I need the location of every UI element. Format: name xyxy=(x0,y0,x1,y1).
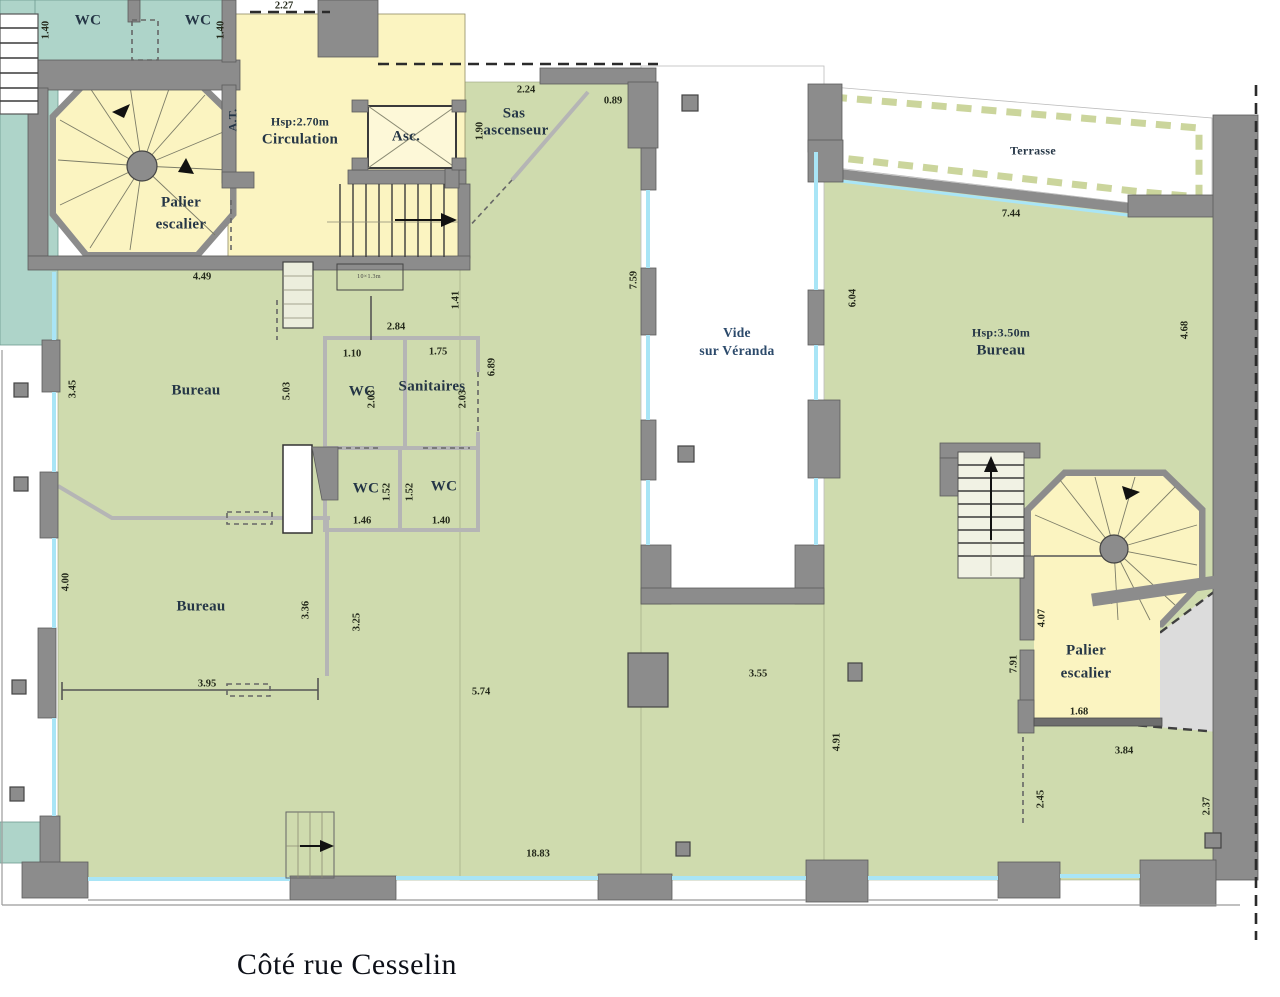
dim-wc-right: 1.40 xyxy=(216,21,227,39)
dim-sas-right: 0.89 xyxy=(604,96,622,107)
dim-bureau-r-right: 4.68 xyxy=(1180,321,1191,339)
dim-open-mid: 3.55 xyxy=(749,669,767,680)
dim-wc-low-r-w: 1.40 xyxy=(432,516,450,527)
wall-mid-band xyxy=(28,256,470,270)
room-label-elevator: Asc. xyxy=(392,129,420,146)
room-label-palier-right-2: escalier xyxy=(1061,666,1112,683)
wall-right-main xyxy=(1213,115,1258,880)
void-wall-r3 xyxy=(808,400,840,478)
pier-b6 xyxy=(1140,860,1216,906)
wall-left-b1 xyxy=(42,340,60,392)
dim-wc-low-r-h: 1.52 xyxy=(405,483,416,501)
dim-bureau2-right: 3.36 xyxy=(301,601,312,619)
dim-sas-h: 1.90 xyxy=(475,122,486,140)
dim-below-palier: 3.84 xyxy=(1115,746,1133,757)
spiral-right-newel xyxy=(1100,535,1128,563)
wall-left-b4 xyxy=(40,816,60,868)
dim-right-edge: 2.37 xyxy=(1202,797,1213,815)
room-label-terrasse: Terrasse xyxy=(1010,144,1056,159)
dim-bureau2-left: 4.00 xyxy=(61,573,72,591)
room-label-wc-low-right: WC xyxy=(431,479,457,496)
room-label-bureau-upper: Bureau xyxy=(171,383,220,400)
wall-rstair-left xyxy=(940,458,958,496)
void-wall-l3 xyxy=(641,268,656,335)
wall-at-2 xyxy=(222,172,254,188)
spiral-left-newel xyxy=(127,151,157,181)
room-label-circulation: Circulation xyxy=(262,132,338,149)
wall-slant-end xyxy=(1128,195,1216,217)
wall-asc-stub xyxy=(445,168,459,188)
pier-b1 xyxy=(22,862,88,898)
pier-b4 xyxy=(806,860,868,902)
dim-below-palier-v: 2.45 xyxy=(1036,790,1047,808)
dim-san-corner: 1.41 xyxy=(451,291,462,309)
dim-wc-low-l-w: 1.46 xyxy=(353,516,371,527)
dim-palier-r-left: 4.07 xyxy=(1037,609,1048,627)
green-under-void xyxy=(641,604,824,880)
room-label-wc-low-left: WC xyxy=(353,481,379,498)
dim-vide-left: 7.59 xyxy=(629,271,640,289)
room-label-circulation-height: Hsp:2.70m xyxy=(271,115,329,130)
wall-terr-left xyxy=(808,140,843,182)
room-label-vide-1: Vide xyxy=(723,325,751,341)
dim-san-h: 2.03 xyxy=(458,390,469,408)
room-label-vide-2: sur Véranda xyxy=(699,343,774,359)
dim-palier-r-outer: 7.91 xyxy=(1009,655,1020,673)
floor-plan-canvas: WC WC 1.40 1.40 2.27 A.T. Hsp:2.70m Circ… xyxy=(0,0,1280,997)
dim-wc-mid-h: 2.03 xyxy=(367,390,378,408)
wall-palier-step xyxy=(1018,700,1034,733)
wall-top-band xyxy=(8,60,240,90)
pier-b3 xyxy=(598,874,672,900)
room-label-at: A.T. xyxy=(226,109,241,132)
wall-wc-divider xyxy=(128,0,140,22)
dim-san-w: 1.75 xyxy=(429,347,447,358)
void-wall-l2 xyxy=(641,148,656,190)
wall-left-b3 xyxy=(38,628,56,718)
room-label-sanitaires: Sanitaires xyxy=(399,379,466,396)
stair-note: 10×1.3m xyxy=(357,274,381,280)
room-label-palier-right-1: Palier xyxy=(1066,643,1106,660)
green-center-floor xyxy=(460,82,656,880)
room-label-bureau-lower: Bureau xyxy=(176,599,225,616)
dim-open-w: 5.74 xyxy=(472,687,490,698)
wc-fixture xyxy=(283,445,312,533)
pier-b5 xyxy=(998,862,1060,898)
wall-palier-bottom xyxy=(1034,718,1162,726)
dim-bureau1-right: 5.03 xyxy=(282,382,293,400)
dim-san-top: 2.84 xyxy=(387,322,405,333)
dim-open-mid-v: 4.91 xyxy=(832,733,843,751)
floor-plan-drawing xyxy=(0,0,1280,997)
room-label-palier-left-1: Palier xyxy=(161,195,201,212)
void-wall-bottom xyxy=(641,588,824,604)
room-label-wc-left: WC xyxy=(75,13,101,30)
pier-b2 xyxy=(290,876,396,900)
dim-top-width: 2.27 xyxy=(275,1,293,12)
dim-wc-mid-w: 1.10 xyxy=(343,349,361,360)
void-wall-l1 xyxy=(628,82,658,148)
stair-right xyxy=(958,452,1024,578)
dim-bureau1-left: 3.45 xyxy=(68,380,79,398)
dim-sas-w: 2.24 xyxy=(517,85,535,96)
dim-san-right: 6.89 xyxy=(487,358,498,376)
dim-terr-w: 7.44 xyxy=(1002,209,1020,220)
dim-total-w: 18.83 xyxy=(526,849,550,860)
dim-open-left: 3.25 xyxy=(352,613,363,631)
stair-top-left xyxy=(0,14,38,114)
wall-stair-right xyxy=(458,184,470,258)
wall-top-chunk xyxy=(318,0,378,57)
dim-bureau2-bottom: 3.95 xyxy=(198,679,216,690)
room-label-sas-1: Sas xyxy=(503,106,526,123)
plan-title: Côté rue Cesselin xyxy=(237,948,457,982)
dim-palier-r-bottom: 1.68 xyxy=(1070,707,1088,718)
dim-bureau1-top: 4.49 xyxy=(193,272,211,283)
wall-at-1 xyxy=(222,85,236,183)
palier-right-floor xyxy=(1034,556,1160,722)
dim-vide-right: 6.04 xyxy=(848,289,859,307)
dim-wc-left: 1.40 xyxy=(41,21,52,39)
room-label-bureau-right-height: Hsp:3.50m xyxy=(972,326,1030,341)
room-label-wc-right: WC xyxy=(185,13,211,30)
void-wall-l4 xyxy=(641,420,656,480)
room-label-sas-2: ascenseur xyxy=(483,123,548,140)
room-label-palier-left-2: escalier xyxy=(156,217,207,234)
dim-wc-low-l-h: 1.52 xyxy=(382,483,393,501)
void-wall-r2 xyxy=(808,290,824,345)
wall-left-b2 xyxy=(40,472,58,538)
room-label-bureau-right: Bureau xyxy=(976,343,1025,360)
